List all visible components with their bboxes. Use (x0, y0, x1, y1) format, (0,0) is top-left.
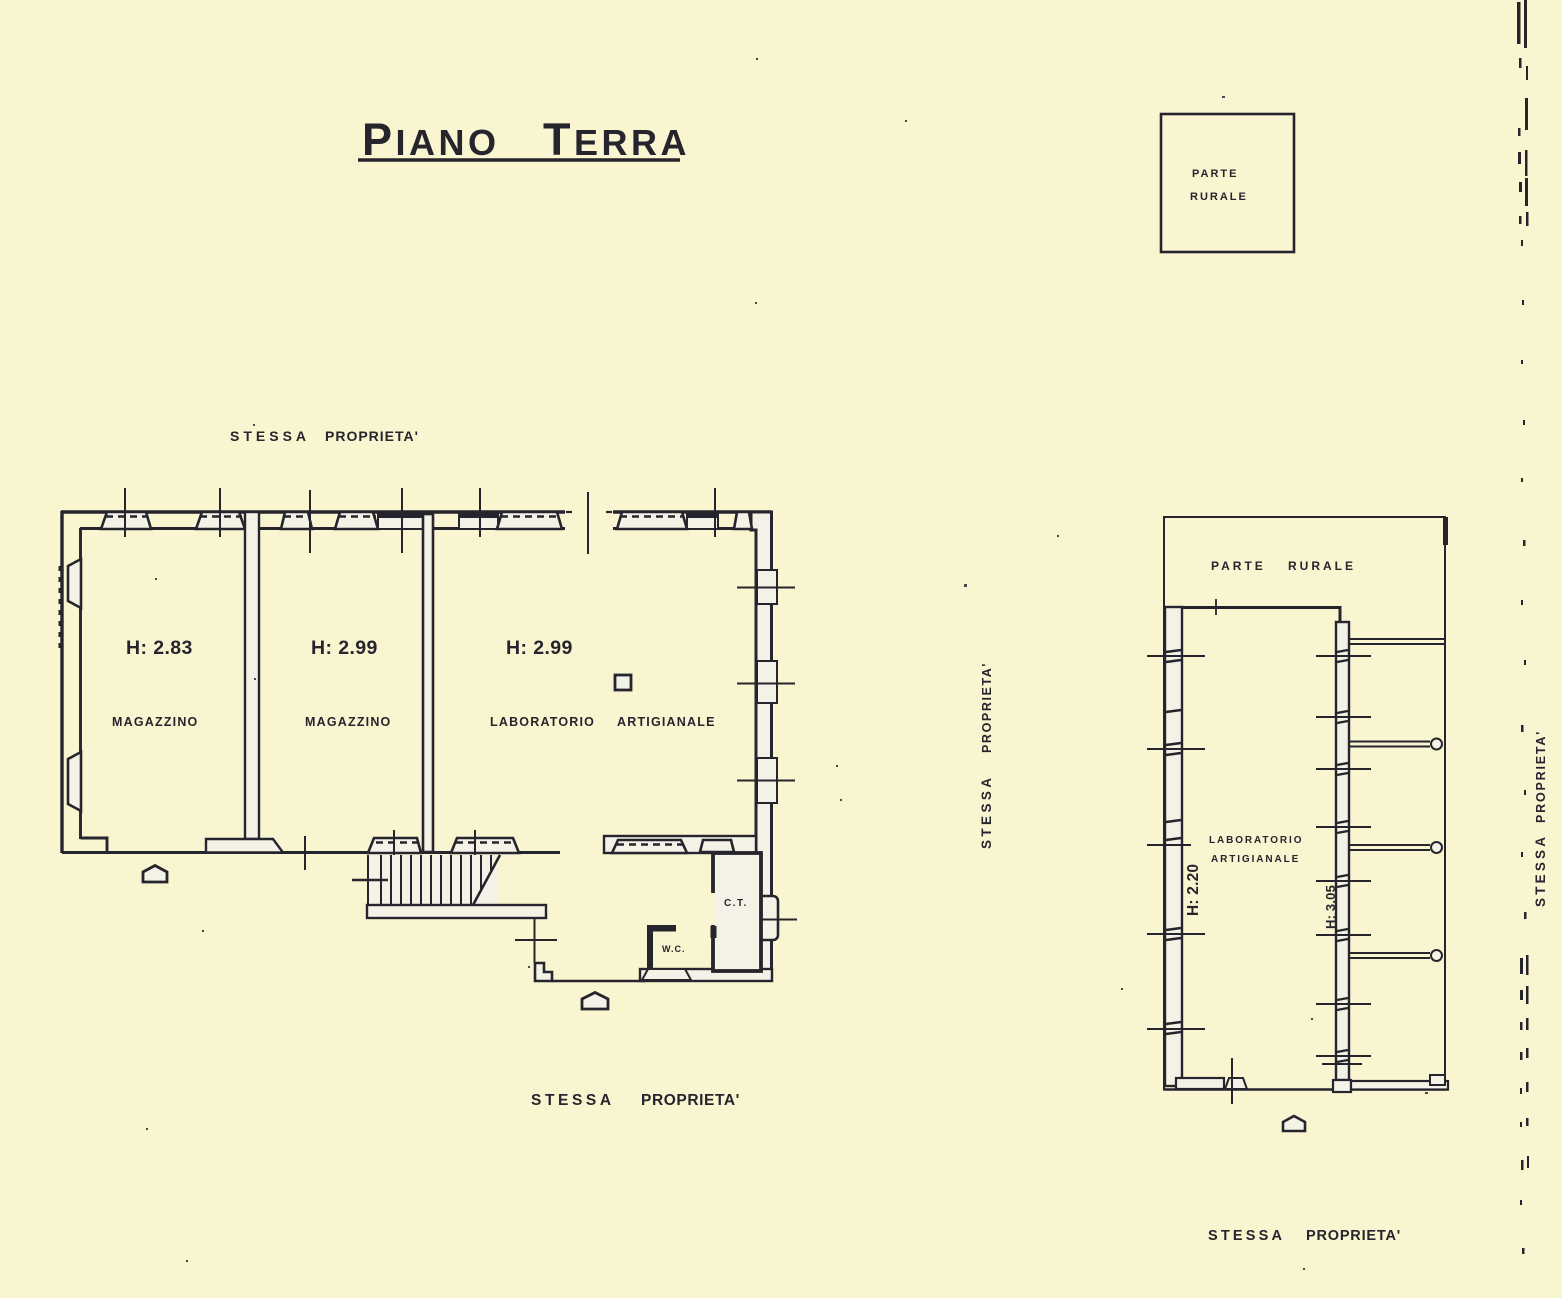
svg-text:PARTE: PARTE (1211, 559, 1266, 573)
svg-text:LABORATORIO: LABORATORIO (1209, 835, 1303, 846)
svg-text:H: 2.99: H: 2.99 (311, 637, 378, 659)
svg-text:PROPRIETA': PROPRIETA' (980, 662, 994, 753)
svg-text:PROPRIETA': PROPRIETA' (641, 1092, 740, 1109)
svg-text:RURALE: RURALE (1288, 559, 1356, 573)
svg-text:MAGAZZINO: MAGAZZINO (112, 715, 198, 729)
svg-text:STESSA: STESSA (230, 428, 310, 444)
svg-text:PROPRIETA': PROPRIETA' (1534, 730, 1548, 823)
svg-text:PROPRIETA': PROPRIETA' (325, 428, 419, 444)
svg-text:ARTIGIANALE: ARTIGIANALE (617, 715, 716, 729)
svg-text:PIANO: PIANO (362, 114, 500, 165)
svg-text:STESSA: STESSA (531, 1092, 615, 1109)
svg-text:H: 2.99: H: 2.99 (506, 637, 573, 659)
svg-text:H: 3.05: H: 3.05 (1323, 885, 1338, 929)
svg-text:LABORATORIO: LABORATORIO (490, 715, 595, 729)
svg-text:W.C.: W.C. (662, 944, 686, 954)
svg-text:PARTE: PARTE (1192, 168, 1238, 180)
svg-text:H: 2.83: H: 2.83 (126, 637, 193, 659)
svg-text:STESSA: STESSA (1208, 1228, 1285, 1244)
svg-text:STESSA: STESSA (979, 775, 994, 849)
svg-text:MAGAZZINO: MAGAZZINO (305, 715, 391, 729)
svg-text:ARTIGIANALE: ARTIGIANALE (1211, 854, 1300, 865)
svg-text:C.T.: C.T. (724, 898, 748, 909)
svg-text:STESSA: STESSA (1533, 834, 1548, 907)
svg-text:H: 2.20: H: 2.20 (1185, 864, 1202, 916)
svg-text:PROPRIETA': PROPRIETA' (1306, 1228, 1401, 1244)
svg-text:RURALE: RURALE (1190, 191, 1248, 203)
svg-text:TERRA: TERRA (543, 114, 690, 165)
